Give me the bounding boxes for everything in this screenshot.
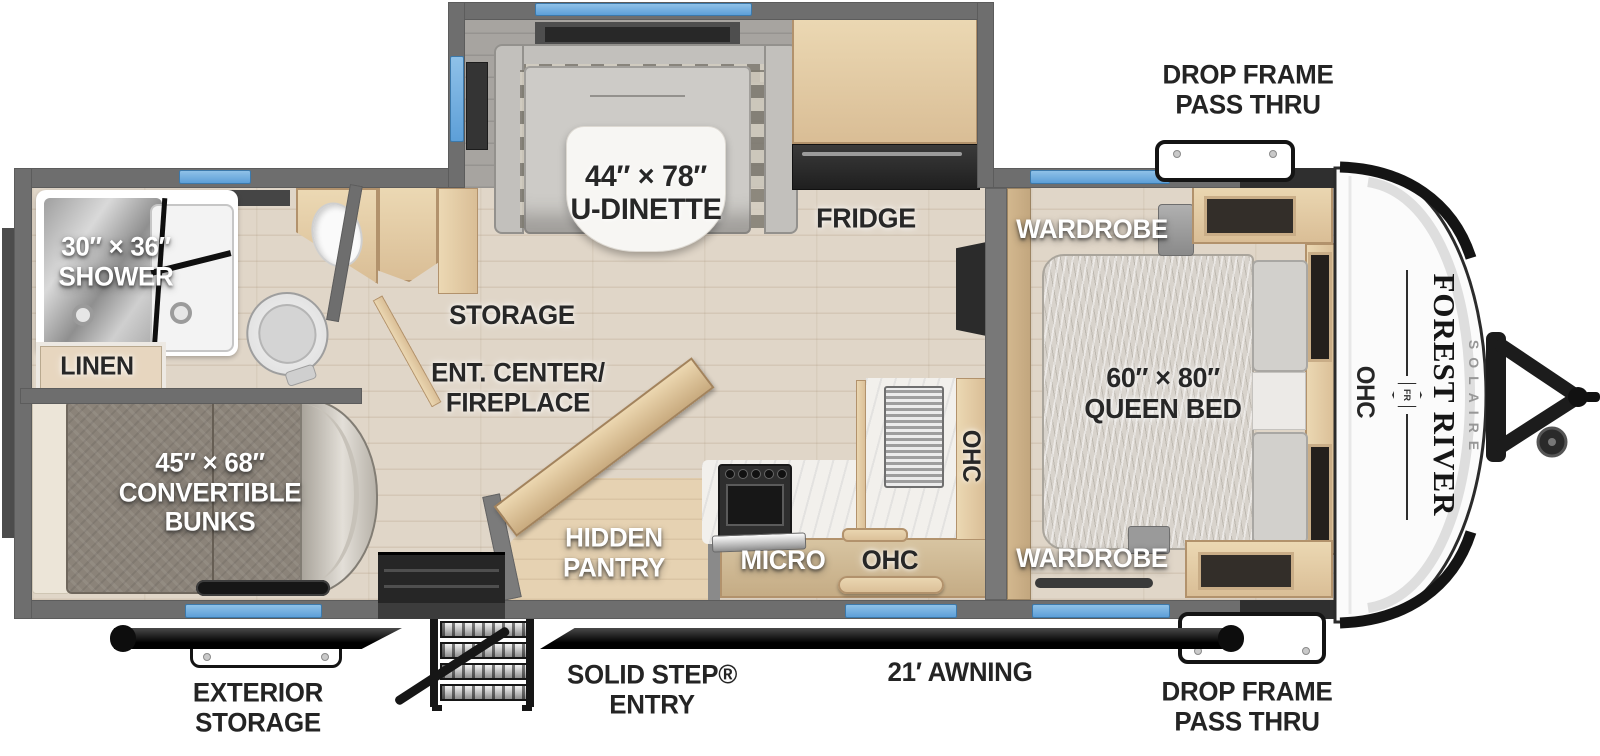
label-solid-step-entry: SOLID STEP® ENTRY	[567, 660, 737, 719]
dinette-seat-seam	[590, 95, 685, 97]
label-linen: LINEN	[60, 352, 133, 381]
wardrobe-top-open-shelf	[1204, 196, 1296, 236]
step-tread-1	[440, 621, 528, 638]
label-shower: 30″ × 36″ SHOWER	[59, 232, 174, 291]
wall-bath-bunk-divider	[20, 388, 362, 404]
label-u-dinette: 44″ × 78″ U-DINETTE	[570, 160, 721, 226]
label-wardrobe-bottom: WARDROBE	[1016, 544, 1168, 574]
stove-knob-1	[725, 469, 735, 479]
hatch-screw	[321, 653, 329, 661]
step-tread-4	[440, 684, 528, 701]
window-kitchen-bottom	[845, 604, 957, 618]
wall-slideout-right	[977, 2, 994, 188]
label-awning: 21′ AWNING	[888, 658, 1033, 688]
wall-kitchen-bedroom-partition	[985, 188, 1007, 600]
stove-knob-2	[738, 469, 748, 479]
awning-bar-right	[540, 628, 1232, 649]
fridge-front	[792, 144, 980, 190]
floorplan-canvas: SOLAIRE FOREST RIVER FR DROP FRAME PASS …	[0, 0, 1600, 756]
storage-cabinet-tall	[378, 186, 438, 282]
step-foot-left	[432, 705, 442, 711]
brand-block: SOLAIRE FOREST RIVER FR	[1400, 255, 1474, 535]
step-rail-left	[430, 619, 438, 707]
brand-model: SOLAIRE	[1466, 332, 1482, 458]
window-slideout-top	[535, 3, 752, 16]
brand-rule	[1406, 414, 1408, 520]
wardrobe-bottom-open-shelf	[1198, 552, 1294, 590]
kitchen-counter-trim	[856, 380, 866, 540]
brand-rule	[1406, 270, 1408, 376]
window-bunks-bottom	[185, 604, 322, 618]
step-foot-right	[522, 705, 532, 711]
label-ohc-front: OHC	[1350, 366, 1378, 418]
storage-cabinet-side	[438, 188, 478, 294]
awning-cap-left	[110, 625, 136, 652]
floor-tray	[838, 576, 944, 594]
hitch-arm-upper	[1502, 346, 1572, 393]
rear-bumper	[2, 228, 14, 538]
shower-drain-left	[72, 304, 94, 326]
dinette-overhead-panel-inner	[545, 27, 730, 42]
label-queen-bed: 60″ × 80″ QUEEN BED	[1084, 363, 1241, 425]
label-ohc-kitchen-upper: OHC	[956, 430, 984, 482]
stove-oven-window	[726, 484, 784, 526]
hatch-screw	[1173, 150, 1181, 158]
entry-landing-line-2	[384, 585, 499, 588]
window-rear-top	[179, 170, 251, 184]
hitch-stub	[1584, 392, 1600, 402]
hatch-screw	[1269, 150, 1277, 158]
bunk-bolster	[32, 398, 70, 594]
window-bedroom-top	[1030, 170, 1170, 184]
label-drop-frame-bottom: DROP FRAME PASS THRU	[1162, 677, 1333, 736]
entry-landing-line-1	[384, 569, 499, 572]
label-fridge: FRIDGE	[816, 204, 916, 235]
label-exterior-storage: EXTERIOR STORAGE	[193, 678, 323, 737]
awning-cap-right	[1218, 625, 1244, 652]
stove-knob-3	[751, 469, 761, 479]
forest-river-logo-icon: FR	[1392, 382, 1422, 408]
window-bedroom-bottom	[1032, 604, 1170, 618]
awning-bar-left	[114, 628, 402, 649]
window-slideout-side	[450, 56, 464, 142]
entry-landing	[378, 552, 505, 603]
label-storage: STORAGE	[449, 301, 575, 331]
hitch-jack-hub	[1548, 438, 1556, 446]
stove-knob-5	[777, 469, 787, 479]
shower-drain-right	[170, 302, 192, 324]
brand-make: FOREST RIVER	[1426, 273, 1462, 516]
dinette-bench-right-trim	[751, 70, 764, 228]
label-hidden-pantry: HIDDEN PANTRY	[563, 523, 665, 582]
wall-bedroom-wood	[1007, 188, 1031, 600]
label-ohc-kitchen: OHC	[862, 546, 919, 576]
label-convertible-bunks: 45″ × 68″ CONVERTIBLE BUNKS	[119, 448, 302, 537]
pass-thru-handle-top	[1155, 140, 1295, 182]
bed-slide-rail	[1035, 578, 1153, 588]
kitchen-sink-cover	[884, 386, 944, 488]
fridge-cabinet	[792, 14, 978, 144]
fridge-handle	[802, 152, 962, 156]
dinette-tv	[466, 62, 488, 150]
hatch-screw	[203, 653, 211, 661]
label-ent-center: ENT. CENTER/ FIREPLACE	[431, 358, 605, 417]
counter-tray	[842, 528, 908, 542]
brand-rule-row: FR	[1392, 270, 1422, 520]
bunk-step-mat	[196, 580, 330, 596]
label-drop-frame-top: DROP FRAME PASS THRU	[1163, 60, 1334, 119]
label-wardrobe-top: WARDROBE	[1016, 215, 1168, 245]
hatch-screw	[1302, 647, 1310, 655]
stove-knob-4	[764, 469, 774, 479]
label-micro: MICRO	[741, 546, 826, 576]
